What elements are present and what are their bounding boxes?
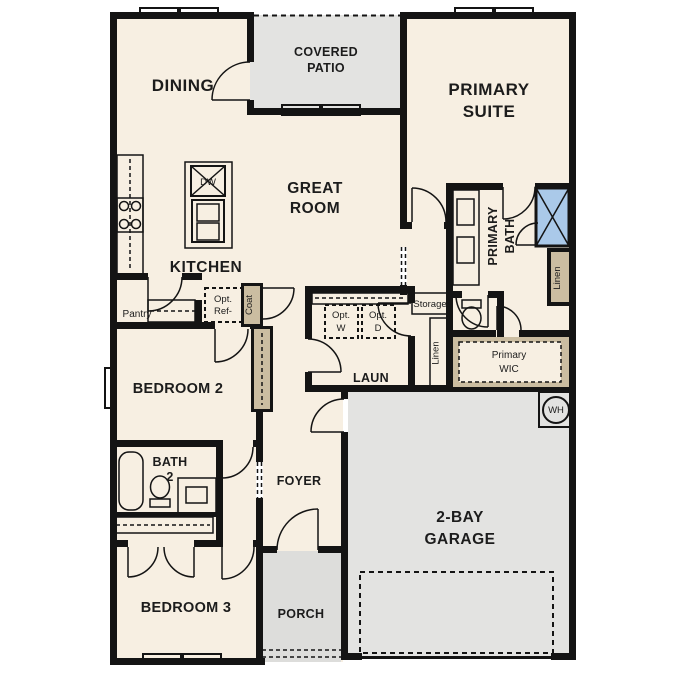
label-bedroom2: BEDROOM 2 <box>133 381 224 397</box>
label-linen-bath: Linen <box>552 266 563 289</box>
label-wh: WH <box>548 405 564 416</box>
svg-text:PATIO: PATIO <box>307 61 345 75</box>
label-primary-suite: PRIMARY <box>448 80 529 99</box>
svg-text:Ref-: Ref- <box>214 306 232 317</box>
label-porch: PORCH <box>278 607 325 621</box>
floor-plan-drawing: DINING COVERED PATIO PRIMARY SUITE GREAT… <box>0 0 687 687</box>
label-storage: Storage <box>413 299 446 310</box>
label-primary-wic: Primary <box>492 350 526 361</box>
svg-text:GARAGE: GARAGE <box>424 531 495 548</box>
svg-text:W: W <box>337 323 346 334</box>
label-pantry: Pantry <box>123 309 152 320</box>
label-linen-hall: Linen <box>431 341 442 364</box>
svg-text:ROOM: ROOM <box>290 200 340 217</box>
label-kitchen: KITCHEN <box>170 259 242 276</box>
label-coat: Coat <box>244 295 255 315</box>
label-opt-ref: Opt. <box>214 294 232 305</box>
label-garage: 2-BAY <box>436 509 484 526</box>
svg-text:SUITE: SUITE <box>463 102 516 121</box>
label-laun: LAUN <box>353 371 389 385</box>
svg-text:WIC: WIC <box>499 364 518 375</box>
label-bath2: BATH <box>153 455 188 469</box>
floor-plan: DINING COVERED PATIO PRIMARY SUITE GREAT… <box>0 0 687 687</box>
label-primary-bath: PRIMARY <box>486 206 500 266</box>
label-covered-patio: COVERED <box>294 45 358 59</box>
label-dining: DINING <box>152 76 215 95</box>
svg-text:2: 2 <box>166 470 173 484</box>
svg-text:D: D <box>375 323 382 334</box>
label-opt-w: Opt. <box>332 310 350 321</box>
label-great-room: GREAT <box>287 180 343 197</box>
label-opt-d: Opt. <box>369 310 387 321</box>
label-dw: DW <box>200 177 216 188</box>
label-bedroom3: BEDROOM 3 <box>141 600 232 616</box>
label-foyer: FOYER <box>277 474 322 488</box>
svg-text:BATH: BATH <box>503 219 517 254</box>
